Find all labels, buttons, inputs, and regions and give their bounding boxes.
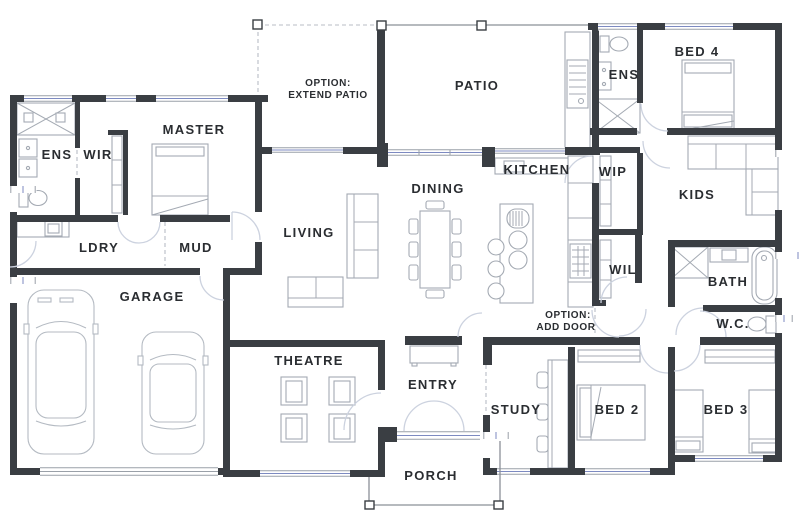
room-label-ens2: ENS	[609, 67, 640, 82]
wall-segment	[775, 298, 782, 315]
furniture	[56, 113, 65, 122]
fixture	[26, 146, 29, 149]
furniture	[568, 156, 593, 307]
wall-segment	[10, 95, 17, 186]
wall-segment	[10, 303, 17, 475]
room-label-entry: ENTRY	[408, 377, 458, 392]
wall-segment	[483, 468, 497, 475]
wall-segment	[10, 215, 118, 222]
patio-post	[377, 21, 386, 30]
window	[775, 252, 800, 259]
fixture	[509, 251, 527, 269]
furniture	[93, 324, 98, 334]
furniture	[347, 194, 378, 278]
wall-segment	[75, 102, 80, 148]
porch-post	[494, 501, 503, 509]
wall-segment	[405, 336, 462, 345]
wall-segment	[668, 240, 782, 247]
furniture	[567, 60, 588, 108]
wall-segment	[637, 23, 665, 30]
wall-segment	[123, 130, 128, 215]
fixture	[602, 82, 605, 85]
furniture	[334, 418, 350, 439]
room-label-garage: GARAGE	[120, 289, 185, 304]
fixture	[488, 283, 504, 299]
room-label-wip: WIP	[599, 164, 627, 179]
wall-segment	[343, 147, 377, 154]
wall-segment	[667, 128, 782, 135]
wall-segment	[592, 229, 643, 235]
wall-segment	[350, 470, 385, 477]
fixture	[610, 37, 628, 51]
floor-plan-canvas: MASTER ENS WIR LDRY MUD GARAGE LIVING DI…	[0, 0, 800, 521]
furniture	[48, 224, 59, 233]
furniture	[409, 265, 418, 280]
wall-segment	[10, 268, 200, 275]
room-label-bed3: BED 3	[704, 402, 749, 417]
porch-post	[365, 501, 374, 509]
furniture	[24, 113, 33, 122]
room-label-ens-master: ENS	[42, 147, 73, 162]
room-label-living: LIVING	[283, 225, 334, 240]
furniture	[409, 242, 418, 257]
floor-plan-drawing: MASTER ENS WIR LDRY MUD GARAGE LIVING DI…	[0, 0, 800, 521]
fixture	[488, 261, 504, 277]
furniture	[420, 211, 450, 288]
option-add-door-line2: ADD DOOR	[536, 322, 595, 333]
wall-segment	[377, 27, 385, 147]
wall-segment	[10, 468, 40, 475]
furniture	[752, 443, 776, 452]
furniture	[451, 363, 456, 366]
wall-segment	[668, 247, 675, 307]
furniture	[600, 36, 609, 52]
fixture	[602, 68, 605, 71]
option-extend-patio-line2: EXTEND PATIO	[288, 90, 368, 101]
wall-segment	[733, 23, 782, 30]
wall-segment	[775, 333, 782, 462]
furniture	[412, 363, 417, 366]
wall-segment	[255, 95, 262, 154]
wall-segment	[72, 95, 106, 102]
furniture	[156, 147, 204, 156]
wall-segment	[668, 347, 675, 470]
room-label-bath: BATH	[708, 274, 748, 289]
room-label-wc: W.C.	[716, 316, 749, 331]
room-label-bed2: BED 2	[595, 402, 640, 417]
room-label-wil: WIL	[609, 262, 637, 277]
wall-segment	[223, 470, 260, 477]
wall-segment	[568, 347, 575, 470]
wall-segment	[223, 340, 385, 347]
wall-segment	[703, 305, 775, 312]
wall-segment	[637, 153, 643, 229]
wall-segment	[592, 300, 606, 306]
furniture	[36, 332, 86, 418]
wall-segment	[483, 415, 490, 432]
fixture	[579, 99, 584, 104]
room-label-study: STUDY	[491, 402, 542, 417]
room-label-kitchen: KITCHEN	[504, 162, 571, 177]
wall-segment	[483, 337, 640, 345]
wall-segment	[530, 468, 585, 475]
furniture	[685, 63, 731, 73]
wall-segment	[763, 455, 782, 462]
furniture	[688, 136, 778, 169]
furniture	[548, 360, 568, 468]
furniture	[24, 324, 29, 334]
room-label-ldry: LDRY	[79, 240, 119, 255]
wall-segment	[598, 147, 640, 153]
furniture	[537, 372, 548, 388]
furniture	[452, 219, 461, 234]
wall-segment	[378, 427, 397, 442]
furniture	[426, 290, 444, 298]
furniture	[60, 298, 73, 302]
furniture	[537, 436, 548, 452]
room-label-mud: MUD	[179, 240, 213, 255]
wall-segment	[482, 147, 495, 167]
room-label-patio: PATIO	[455, 78, 499, 93]
wall-segment	[223, 268, 230, 477]
option-add-door-line1: OPTION:	[545, 310, 591, 321]
wall-segment	[675, 455, 695, 462]
wall-segment	[592, 147, 599, 155]
fixture	[488, 239, 504, 255]
wall-segment	[588, 23, 598, 30]
wall-segment	[255, 154, 262, 212]
fixture	[509, 231, 527, 249]
furniture	[570, 244, 591, 278]
room-label-master: MASTER	[163, 122, 226, 137]
furniture	[38, 298, 51, 302]
furniture	[203, 356, 208, 365]
wall-segment	[75, 178, 80, 215]
wall-segment	[668, 455, 675, 475]
furniture	[452, 265, 461, 280]
fixture	[762, 256, 767, 261]
furniture	[580, 388, 591, 437]
option-extend-patio-line1: OPTION:	[305, 78, 351, 89]
wall-segment	[160, 215, 230, 222]
room-label-bed4: BED 4	[675, 44, 720, 59]
wall-segment	[378, 340, 385, 390]
wall-segment	[592, 183, 599, 305]
room-label-dining: DINING	[411, 181, 464, 196]
furniture	[112, 136, 122, 213]
furniture	[286, 418, 302, 439]
room-label-kids: KIDS	[679, 187, 715, 202]
furniture	[409, 219, 418, 234]
fixture	[748, 317, 766, 331]
room-label-theatre: THEATRE	[274, 353, 344, 368]
furniture	[334, 381, 350, 402]
furniture	[150, 364, 196, 422]
patio-post	[477, 21, 486, 30]
furniture	[286, 381, 302, 402]
wall-segment	[700, 337, 782, 345]
furniture	[138, 356, 143, 365]
room-label-wir: WIR	[83, 147, 112, 162]
room-label-porch: PORCH	[404, 468, 457, 483]
furniture	[722, 250, 736, 260]
furniture	[426, 201, 444, 209]
option-patio-post	[253, 20, 262, 29]
wall-segment	[136, 95, 156, 102]
wall-segment	[377, 143, 388, 167]
furniture	[676, 441, 700, 450]
furniture	[410, 346, 458, 363]
fixture	[26, 166, 29, 169]
window	[775, 150, 800, 157]
wall-segment	[590, 128, 637, 135]
furniture	[452, 242, 461, 257]
wall-segment	[255, 147, 272, 154]
